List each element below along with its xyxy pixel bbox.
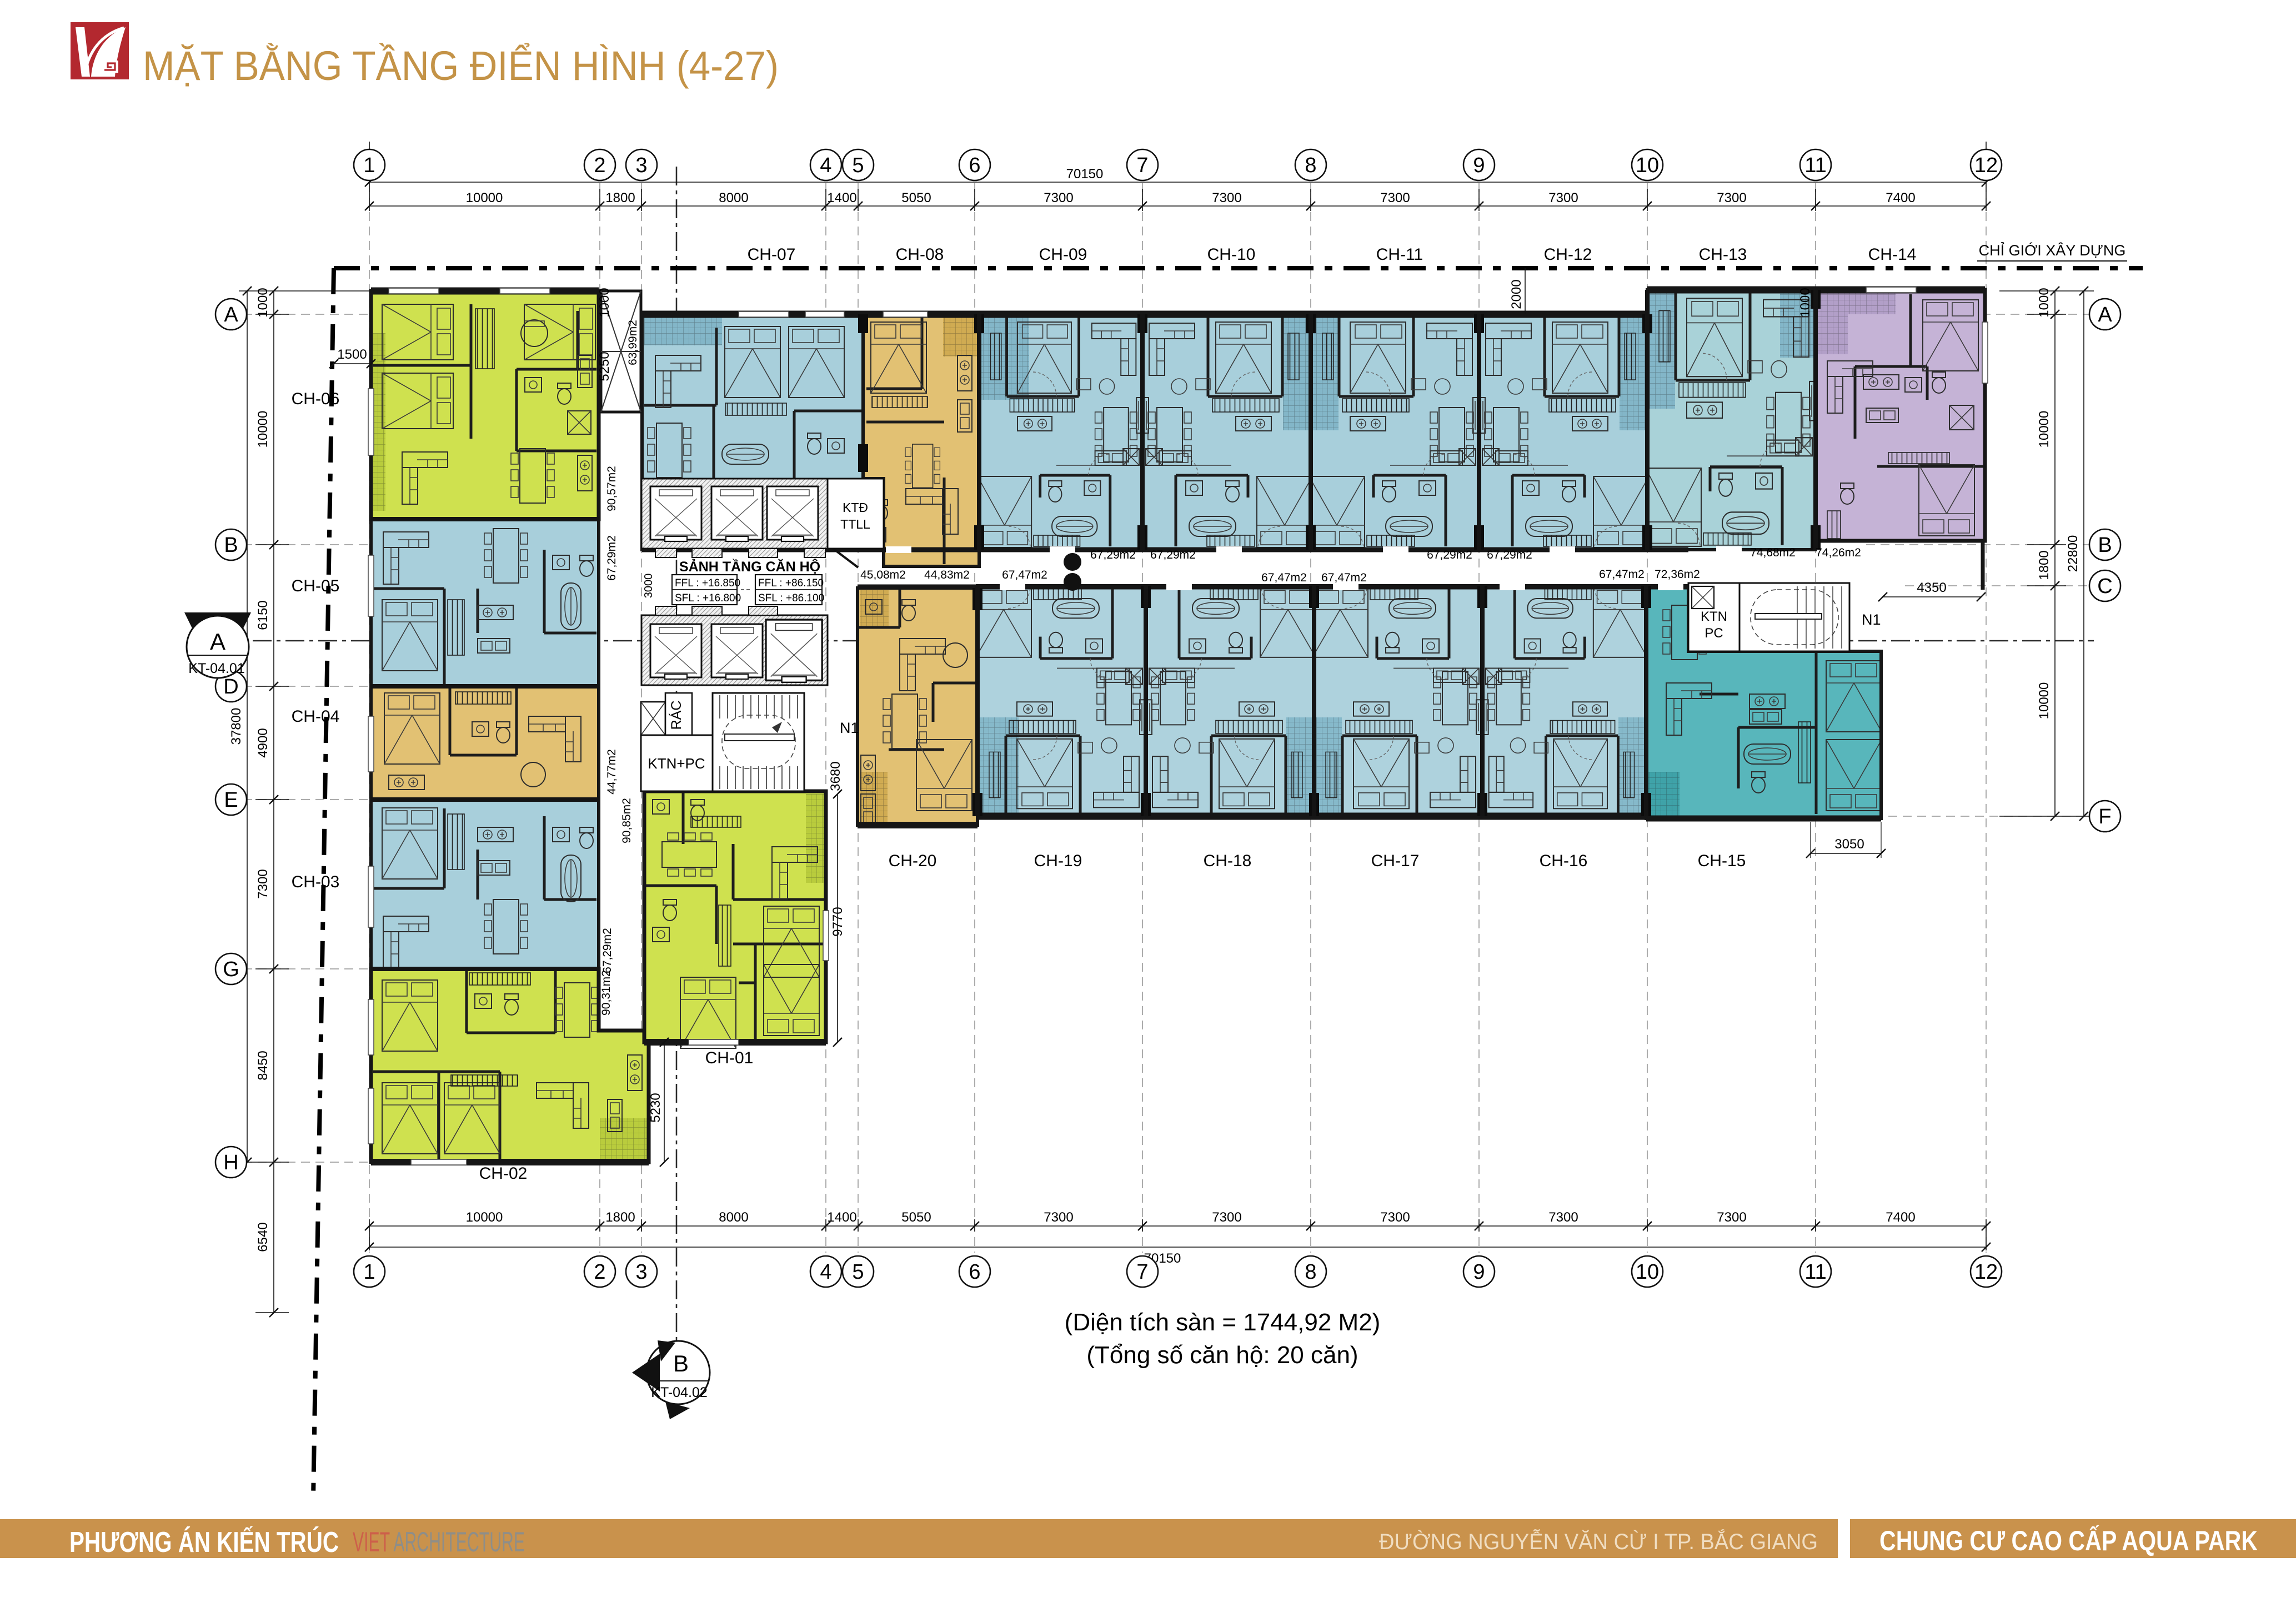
- svg-text:5: 5: [852, 154, 864, 177]
- svg-text:3680: 3680: [828, 761, 843, 791]
- svg-text:4: 4: [820, 154, 831, 177]
- svg-text:44,83m2: 44,83m2: [924, 569, 970, 581]
- svg-text:CH-09: CH-09: [1039, 245, 1087, 264]
- svg-text:CH-17: CH-17: [1371, 852, 1420, 870]
- svg-text:5: 5: [852, 1260, 864, 1284]
- svg-text:4900: 4900: [255, 728, 270, 757]
- svg-text:1400: 1400: [827, 1210, 856, 1225]
- svg-text:CH-08: CH-08: [896, 245, 944, 264]
- svg-text:B: B: [673, 1350, 689, 1376]
- svg-text:H: H: [223, 1151, 238, 1174]
- svg-text:PHƯƠNG ÁN KIẾN TRÚC: PHƯƠNG ÁN KIẾN TRÚC: [69, 1526, 339, 1559]
- svg-text:CH-20: CH-20: [889, 852, 937, 870]
- svg-text:3000: 3000: [643, 574, 655, 599]
- svg-text:FFL : +86.150: FFL : +86.150: [758, 577, 824, 589]
- svg-text:4350: 4350: [1917, 580, 1946, 595]
- svg-text:74,26m2: 74,26m2: [1816, 546, 1861, 559]
- svg-text:7300: 7300: [1044, 1210, 1073, 1225]
- svg-text:1000: 1000: [597, 288, 612, 317]
- svg-text:SFL : +86.100: SFL : +86.100: [758, 592, 824, 604]
- svg-text:A: A: [224, 303, 238, 326]
- svg-text:CH-18: CH-18: [1204, 852, 1252, 870]
- svg-text:CH-06: CH-06: [292, 390, 340, 408]
- svg-text:5050: 5050: [901, 1210, 931, 1225]
- svg-text:7300: 7300: [1548, 1210, 1578, 1225]
- svg-text:67,47m2: 67,47m2: [1321, 571, 1367, 584]
- svg-text:10000: 10000: [2037, 411, 2052, 448]
- svg-text:N1: N1: [840, 720, 859, 736]
- svg-text:74,68m2: 74,68m2: [1750, 546, 1796, 559]
- svg-text:KTN+PC: KTN+PC: [648, 755, 705, 772]
- svg-text:3: 3: [635, 1260, 647, 1284]
- svg-text:8: 8: [1305, 1260, 1316, 1284]
- svg-text:67,29m2: 67,29m2: [1427, 549, 1472, 561]
- svg-text:CH-04: CH-04: [292, 707, 340, 726]
- svg-text:67,47m2: 67,47m2: [1599, 568, 1645, 581]
- svg-text:10000: 10000: [466, 1210, 503, 1225]
- svg-text:90,57m2: 90,57m2: [605, 466, 618, 511]
- svg-text:CH-14: CH-14: [1868, 245, 1917, 264]
- svg-text:7300: 7300: [1380, 190, 1410, 205]
- svg-text:2: 2: [594, 1260, 605, 1284]
- svg-text:9: 9: [1473, 154, 1485, 177]
- svg-text:9: 9: [1473, 1260, 1485, 1284]
- svg-text:10: 10: [1636, 154, 1659, 177]
- svg-text:SFL : +16.800: SFL : +16.800: [675, 592, 741, 604]
- svg-text:7400: 7400: [1886, 1210, 1915, 1225]
- svg-text:(Tổng số căn hộ: 20 căn): (Tổng số căn hộ: 20 căn): [1086, 1341, 1358, 1369]
- svg-text:G: G: [223, 958, 239, 981]
- svg-text:1000: 1000: [1798, 288, 1813, 317]
- svg-text:CHỈ GIỚI XÂY DỰNG: CHỈ GIỚI XÂY DỰNG: [1979, 241, 2126, 259]
- svg-text:44,77m2: 44,77m2: [605, 749, 618, 795]
- svg-text:10000: 10000: [255, 411, 270, 448]
- svg-text:10: 10: [1636, 1260, 1659, 1284]
- svg-text:22800: 22800: [2066, 535, 2081, 572]
- svg-text:6150: 6150: [255, 600, 270, 630]
- svg-text:ĐƯỜNG NGUYỄN VĂN CỪ I TP. BẮC: ĐƯỜNG NGUYỄN VĂN CỪ I TP. BẮC GIANG: [1379, 1529, 1818, 1554]
- svg-text:1800: 1800: [2037, 550, 2052, 580]
- svg-text:5230: 5230: [648, 1093, 663, 1122]
- svg-text:N1: N1: [1862, 611, 1881, 628]
- svg-text:(Diện tích sàn = 1744,92 M2): (Diện tích sàn = 1744,92 M2): [1065, 1309, 1381, 1336]
- svg-text:90,85m2: 90,85m2: [620, 798, 633, 843]
- svg-text:KTĐ: KTĐ: [843, 500, 868, 515]
- svg-text:4: 4: [820, 1260, 831, 1284]
- svg-text:37800: 37800: [229, 708, 244, 745]
- svg-text:1: 1: [363, 154, 375, 177]
- svg-text:1800: 1800: [605, 1210, 635, 1225]
- svg-text:5050: 5050: [901, 190, 931, 205]
- svg-text:VIET ARCHITECTURE: VIET ARCHITECTURE: [353, 1526, 525, 1557]
- svg-text:10000: 10000: [2037, 682, 2052, 720]
- svg-text:63,99m2: 63,99m2: [626, 320, 639, 365]
- svg-text:D: D: [223, 675, 238, 699]
- svg-text:67,29m2: 67,29m2: [601, 928, 614, 973]
- svg-text:1500: 1500: [337, 347, 367, 362]
- svg-text:CH-11: CH-11: [1376, 245, 1423, 264]
- svg-text:90,31m2: 90,31m2: [600, 970, 613, 1016]
- svg-text:7300: 7300: [1548, 190, 1578, 205]
- svg-text:67,47m2: 67,47m2: [1002, 569, 1047, 581]
- svg-text:CH-07: CH-07: [748, 245, 796, 264]
- svg-text:72,36m2: 72,36m2: [1655, 568, 1700, 581]
- svg-text:CH-12: CH-12: [1544, 245, 1592, 264]
- svg-text:7400: 7400: [1886, 190, 1915, 205]
- svg-text:1800: 1800: [605, 190, 635, 205]
- svg-text:CH-10: CH-10: [1207, 245, 1256, 264]
- svg-text:1: 1: [363, 1260, 375, 1284]
- svg-text:7300: 7300: [255, 869, 270, 898]
- svg-text:7300: 7300: [1212, 1210, 1241, 1225]
- svg-text:RÁC: RÁC: [668, 701, 684, 730]
- svg-text:2000: 2000: [1509, 279, 1524, 309]
- svg-text:CH-16: CH-16: [1540, 852, 1588, 870]
- svg-text:PC: PC: [1705, 626, 1723, 641]
- svg-text:8450: 8450: [255, 1051, 270, 1080]
- svg-text:MẶT BẰNG TẦNG ĐIỂN HÌNH (4-27): MẶT BẰNG TẦNG ĐIỂN HÌNH (4-27): [143, 43, 779, 89]
- svg-text:7300: 7300: [1044, 190, 1073, 205]
- svg-text:67,47m2: 67,47m2: [1261, 571, 1307, 584]
- svg-text:6: 6: [969, 1260, 980, 1284]
- svg-text:7300: 7300: [1212, 190, 1241, 205]
- svg-text:11: 11: [1804, 154, 1826, 177]
- svg-text:1000: 1000: [2037, 288, 2052, 317]
- svg-text:7: 7: [1136, 1260, 1148, 1284]
- svg-text:7300: 7300: [1717, 190, 1746, 205]
- svg-text:F: F: [2098, 805, 2111, 828]
- svg-text:8000: 8000: [719, 190, 748, 205]
- svg-text:8: 8: [1305, 154, 1316, 177]
- svg-text:11: 11: [1804, 1260, 1826, 1284]
- svg-text:12: 12: [1974, 1260, 1998, 1284]
- svg-text:KT-04.01: KT-04.01: [188, 661, 244, 676]
- svg-text:CH-15: CH-15: [1698, 852, 1746, 870]
- svg-text:5250: 5250: [597, 351, 612, 381]
- svg-text:CH-13: CH-13: [1699, 245, 1747, 264]
- svg-text:KT-04.02: KT-04.02: [651, 1385, 707, 1400]
- svg-text:CH-01: CH-01: [705, 1049, 754, 1067]
- svg-text:CHUNG CƯ CAO CẤP AQUA PARK: CHUNG CƯ CAO CẤP AQUA PARK: [1879, 1525, 2258, 1556]
- svg-text:7: 7: [1136, 154, 1148, 177]
- svg-text:67,29m2: 67,29m2: [1150, 549, 1196, 561]
- svg-text:67,29m2: 67,29m2: [1487, 549, 1532, 561]
- svg-text:1400: 1400: [827, 190, 856, 205]
- svg-text:8000: 8000: [719, 1210, 748, 1225]
- svg-text:KTN: KTN: [1701, 609, 1727, 624]
- svg-text:67,29m2: 67,29m2: [1090, 549, 1136, 561]
- svg-text:B: B: [2098, 534, 2112, 557]
- svg-text:CH-03: CH-03: [292, 873, 340, 891]
- svg-text:3: 3: [635, 154, 647, 177]
- svg-text:6540: 6540: [255, 1222, 270, 1252]
- svg-text:3050: 3050: [1834, 837, 1864, 852]
- svg-text:7300: 7300: [1380, 1210, 1410, 1225]
- svg-text:CH-02: CH-02: [479, 1164, 528, 1183]
- svg-text:B: B: [224, 534, 238, 557]
- svg-text:2: 2: [594, 154, 605, 177]
- svg-text:7300: 7300: [1717, 1210, 1746, 1225]
- svg-text:FFL : +16.850: FFL : +16.850: [675, 577, 740, 589]
- svg-text:TTLL: TTLL: [840, 517, 870, 531]
- svg-text:A: A: [2098, 303, 2112, 326]
- svg-text:E: E: [224, 788, 238, 812]
- svg-text:CH-05: CH-05: [292, 577, 340, 595]
- svg-text:C: C: [2097, 575, 2112, 598]
- svg-text:45,08m2: 45,08m2: [860, 569, 906, 581]
- svg-text:12: 12: [1974, 154, 1998, 177]
- svg-text:6: 6: [969, 154, 980, 177]
- svg-text:10000: 10000: [466, 190, 503, 205]
- svg-text:CH-19: CH-19: [1034, 852, 1082, 870]
- svg-text:A: A: [210, 629, 225, 655]
- svg-text:67,29m2: 67,29m2: [605, 535, 618, 581]
- svg-text:70150: 70150: [1066, 167, 1104, 182]
- svg-text:SẢNH TẦNG CĂN HỘ: SẢNH TẦNG CĂN HỘ: [679, 558, 820, 575]
- svg-text:1000: 1000: [255, 288, 270, 317]
